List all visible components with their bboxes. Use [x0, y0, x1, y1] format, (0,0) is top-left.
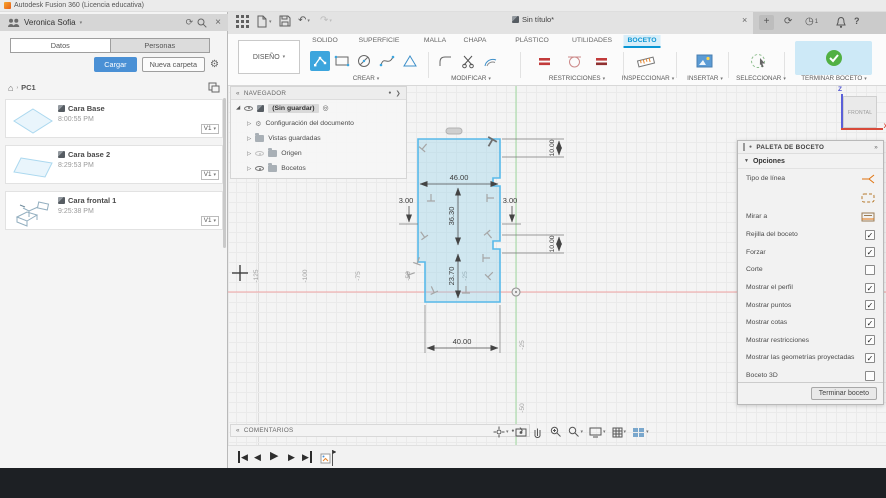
row-label: Mostrar cotas: [746, 319, 787, 326]
expand-icon[interactable]: »: [874, 144, 878, 151]
group-label: MODIFICAR: [451, 75, 486, 82]
palette-row-show-constraints[interactable]: Mostrar restricciones ✓: [738, 332, 883, 350]
version-label: V1: [204, 217, 212, 225]
dim-height-bottom[interactable]: 23.70: [447, 267, 456, 286]
window-title: Autodesk Fusion 360 (Licencia educativa): [14, 2, 144, 9]
palette-row-show-profile[interactable]: Mostrar el perfil ✓: [738, 279, 883, 297]
chevron-down-icon: ▾: [488, 76, 491, 82]
group-label: RESTRICCIONES: [549, 75, 601, 82]
ribbon: SOLIDO SUPERFICIE MALLA CHAPA PLÁSTICO U…: [228, 34, 886, 86]
dim-right-top[interactable]: 10.00: [549, 139, 556, 156]
line-type-icon[interactable]: [861, 174, 875, 184]
viewports-tool[interactable]: ▾: [632, 427, 649, 438]
document-cube-icon: [58, 197, 65, 204]
qat-right-cluster: + ⟳ ◷1 ?: [753, 12, 886, 34]
document-title: Sin título*: [522, 15, 554, 24]
row-label: Corte: [746, 266, 763, 273]
dim-width-bottom[interactable]: 40.00: [453, 337, 472, 346]
file-time: 9:25:38 PM: [58, 208, 94, 215]
help-icon[interactable]: ?: [854, 16, 860, 26]
row-label: Forzar: [746, 249, 766, 256]
timeline-play-button[interactable]: ▶: [270, 450, 278, 462]
file-menu[interactable]: ▾: [257, 15, 272, 28]
x-tick: -75: [355, 271, 362, 281]
chevron-down-icon: ▾: [720, 76, 723, 82]
model-canvas[interactable]: -125 -100 -75 -50 -25 -25 -50 46.00 36.3…: [228, 86, 886, 445]
row-label: Mirar a: [746, 213, 767, 220]
tab-solido[interactable]: SOLIDO: [308, 35, 342, 46]
group-modificar[interactable]: MODIFICAR▾: [451, 75, 491, 82]
pan-tool[interactable]: [533, 426, 544, 438]
palette-row-look-at[interactable]: Mirar a: [738, 207, 883, 226]
fusion-window: Autodesk Fusion 360 (Licencia educativa)…: [0, 0, 886, 498]
group-crear[interactable]: CREAR▾: [353, 75, 380, 82]
dim-tab-left[interactable]: 3.00: [399, 196, 414, 205]
notification-count: 1: [815, 19, 818, 25]
display-settings-tool[interactable]: ▾: [589, 427, 606, 438]
palette-row-slice[interactable]: Corte: [738, 261, 883, 279]
scrollbar[interactable]: [223, 98, 226, 248]
chevron-down-icon: ▾: [603, 429, 606, 435]
refresh-icon[interactable]: ⟳: [186, 17, 194, 28]
checkbox[interactable]: ✓: [865, 318, 875, 328]
windows-taskbar: 17°CNublado W F ∧ ⟳ ESPLAA 21:4114/08/20…: [0, 468, 886, 498]
rectangle-tool[interactable]: [332, 51, 352, 71]
redo-icon: ↷: [320, 15, 328, 26]
finish-sketch-button[interactable]: Terminar boceto: [811, 387, 877, 400]
view-toolbar: ▾ ▾ ▾ ▾ ▾: [493, 426, 649, 438]
workspace-selector[interactable]: DISEÑO ▾: [238, 40, 300, 74]
tab-superficie[interactable]: SUPERFICIE: [355, 35, 404, 46]
tree-open-icon[interactable]: ◢: [236, 105, 240, 111]
chevron-down-icon[interactable]: ▾: [80, 20, 83, 26]
people-icon: [7, 18, 20, 27]
activate-target-icon[interactable]: ◎: [323, 104, 329, 112]
insert-image-tool[interactable]: [694, 51, 714, 71]
upload-button[interactable]: Cargar: [94, 57, 136, 72]
row-label: Mostrar el perfil: [746, 284, 793, 291]
chevron-down-icon: ▾: [213, 217, 216, 225]
y-tick: -50: [519, 403, 526, 413]
folder-icon: [255, 135, 264, 142]
search-icon[interactable]: [197, 18, 207, 28]
clock-glyph: ◷: [805, 16, 814, 27]
file-thumbnail: [10, 105, 56, 135]
row-label: Boceto 3D: [746, 372, 778, 379]
chevron-down-icon: ▾: [603, 76, 606, 82]
folder-icon: [268, 165, 277, 172]
navigator-item-sketches[interactable]: ▷ Bocetos: [231, 161, 406, 176]
visibility-eye-icon[interactable]: [255, 151, 264, 156]
chevron-down-icon: ▾: [864, 76, 867, 82]
orbit-tool[interactable]: ▾: [493, 426, 509, 438]
file-name: Cara Base: [68, 104, 105, 113]
checkbox[interactable]: [865, 265, 875, 275]
version-label: V1: [204, 171, 212, 179]
trim-scissors-tool[interactable]: [458, 51, 478, 71]
tab-utilidades[interactable]: UTILIDADES: [568, 35, 616, 46]
checkbox[interactable]: ✓: [865, 353, 875, 363]
timeline-sketch-marker[interactable]: [320, 449, 336, 467]
save-icon[interactable]: [279, 15, 291, 27]
navigator-item-doc-settings[interactable]: ▷ ⚙ Configuración del documento: [231, 116, 406, 131]
collapse-icon[interactable]: «: [236, 427, 240, 434]
folder-icon: [268, 150, 277, 157]
version-label: V1: [204, 125, 212, 133]
y-tick: -25: [519, 340, 526, 350]
measure-tool[interactable]: [636, 51, 656, 71]
breadcrumb-sep-icon: ›: [16, 85, 18, 91]
dim-right-mid[interactable]: 10.00: [549, 235, 556, 252]
sketch-palette: ● PALETA DE BOCETO » ▼ Opciones Tipo de …: [737, 140, 884, 405]
finish-sketch-ribbon-button[interactable]: [795, 41, 872, 75]
timeline-skip-end-button[interactable]: ▶: [302, 451, 312, 463]
file-card-cara-base[interactable]: Cara Base 8:00:55 PM V1▾: [5, 99, 223, 138]
workspace-label: DISEÑO: [253, 54, 280, 61]
polygon-tool[interactable]: [400, 51, 420, 71]
dim-tab-right[interactable]: 3.00: [503, 196, 518, 205]
timeline-bar: ◀ ◀ ▶ ▶ ▶: [228, 445, 886, 468]
chevron-down-icon: ▾: [581, 429, 584, 435]
tab-malla[interactable]: MALLA: [420, 35, 450, 46]
item-label: Origen: [281, 150, 301, 157]
group-label: INSPECCIONAR: [622, 75, 670, 82]
checkbox[interactable]: [865, 371, 875, 381]
dim-height-mid[interactable]: 36.30: [447, 207, 456, 226]
palette-row-show-points[interactable]: Mostrar puntos ✓: [738, 296, 883, 314]
bell-icon[interactable]: [835, 16, 847, 29]
drag-handle[interactable]: [743, 143, 745, 151]
file-thumbnail: [10, 195, 56, 228]
row-label: Rejilla del boceto: [746, 231, 798, 238]
group-label: TERMINAR BOCETO: [801, 75, 862, 82]
timeline-step-back-button[interactable]: ◀: [254, 451, 261, 463]
row-label: Tipo de línea: [746, 175, 785, 182]
new-document-plus-icon[interactable]: +: [759, 15, 774, 30]
fusion-app-icon: [4, 2, 11, 9]
item-label: Configuración del documento: [266, 120, 354, 127]
group-label: INSERTAR: [687, 75, 718, 82]
circle-tool[interactable]: [354, 51, 374, 71]
collection-icon[interactable]: [208, 82, 220, 93]
group-seleccionar[interactable]: SELECCIONAR▾: [736, 75, 786, 82]
chevron-down-icon: ▾: [672, 76, 675, 82]
z-axis-label: Z: [838, 86, 842, 93]
panel-settings-gear-icon[interactable]: ⚙: [210, 59, 219, 70]
job-status-icon[interactable]: ⟳: [784, 16, 792, 27]
group-insertar[interactable]: INSERTAR▾: [687, 75, 723, 82]
chevron-down-icon: ▾: [213, 125, 216, 133]
row-label: Mostrar puntos: [746, 302, 791, 309]
checkbox[interactable]: ✓: [865, 247, 875, 257]
file-card-cara-base-2[interactable]: Cara base 2 8:29:53 PM V1▾: [5, 145, 223, 184]
breadcrumb: ⌂ › PC1: [8, 82, 220, 93]
grid-settings-tool[interactable]: ▾: [612, 427, 627, 438]
gear-icon: ⚙: [255, 120, 261, 128]
chevron-down-icon: ▾: [269, 19, 272, 25]
palette-row-line-type[interactable]: Tipo de línea: [738, 169, 883, 188]
row-label: Mostrar restricciones: [746, 337, 809, 344]
fillet-tool[interactable]: [435, 51, 455, 71]
timeline-step-forward-button[interactable]: ▶: [288, 451, 295, 463]
version-dropdown[interactable]: V1▾: [201, 124, 219, 134]
chevron-down-icon: ▾: [213, 171, 216, 179]
data-panel-header: Veronica Sofia ▾ ⟳ ×: [0, 14, 228, 31]
dot-icon: ●: [749, 144, 752, 150]
row-label: Mostrar las geometrías proyectadas: [746, 354, 854, 361]
redo-button[interactable]: ↷▾: [320, 15, 332, 26]
checkbox[interactable]: ✓: [865, 335, 875, 345]
navigator-title: NAVEGADOR: [244, 90, 385, 97]
item-label: Bocetos: [281, 165, 306, 172]
navigator-item-origin[interactable]: ▷ Origen: [231, 146, 406, 161]
spline-tool[interactable]: [377, 51, 397, 71]
tab-plastico[interactable]: PLÁSTICO: [511, 35, 553, 46]
navigator-panel: « NAVEGADOR ● ❯ ◢ (Sin guardar) ◎ ▷ ⚙ Co…: [230, 86, 407, 179]
offset-tool[interactable]: [480, 51, 500, 71]
item-label: Vistas guardadas: [268, 135, 320, 142]
document-name: (Sin guardar): [268, 104, 318, 113]
undo-icon: ↶: [298, 15, 306, 26]
comments-title: COMENTARIOS: [244, 427, 508, 434]
crosshair-cursor: [232, 265, 248, 281]
collapsed-dim-pill[interactable]: [446, 128, 462, 134]
parallel-constraint-tool[interactable]: [591, 51, 611, 71]
palette-title: PALETA DE BOCETO: [756, 144, 870, 151]
tab-datos[interactable]: Datos: [11, 39, 110, 52]
origin-point[interactable]: [512, 288, 520, 296]
file-time: 8:00:55 PM: [58, 116, 94, 123]
document-cube-icon: [257, 105, 264, 112]
equal-constraint-tool[interactable]: [534, 51, 554, 71]
x-tick: -100: [302, 269, 309, 282]
recent-clock-icon[interactable]: ◷1: [805, 16, 818, 27]
navigator-root-row[interactable]: ◢ (Sin guardar) ◎: [231, 100, 406, 116]
undo-button[interactable]: ↶▾: [298, 15, 310, 26]
select-tool[interactable]: [749, 51, 769, 71]
group-restricciones[interactable]: RESTRICCIONES▾: [549, 75, 605, 82]
line-tool[interactable]: [310, 51, 330, 71]
document-cube-icon: [512, 16, 519, 23]
viewcube[interactable]: Z X FRONTAL: [831, 90, 885, 140]
version-dropdown[interactable]: V1▾: [201, 216, 219, 226]
zoom-tool[interactable]: [550, 426, 562, 438]
checkbox[interactable]: ✓: [865, 230, 875, 240]
chevron-right-icon[interactable]: ❯: [396, 90, 401, 97]
chevron-down-icon: ▾: [506, 429, 509, 435]
user-menu[interactable]: Veronica Sofia: [24, 18, 76, 27]
x-tick: -125: [253, 269, 260, 282]
palette-row-construction[interactable]: [738, 188, 883, 207]
tangent-constraint-tool[interactable]: [564, 51, 584, 71]
palette-row-show-projected[interactable]: Mostrar las geometrías proyectadas ✓: [738, 349, 883, 367]
window-titlebar: Autodesk Fusion 360 (Licencia educativa): [0, 0, 886, 12]
chevron-down-icon: ▾: [283, 54, 286, 60]
document-tab[interactable]: Sin título*: [512, 15, 554, 24]
group-label: CREAR: [353, 75, 375, 82]
document-cube-icon: [58, 151, 65, 158]
collapse-icon[interactable]: «: [236, 90, 240, 97]
group-label: SELECCIONAR: [736, 75, 781, 82]
chevron-down-icon: ▾: [646, 429, 649, 435]
file-thumbnail: [10, 151, 56, 181]
new-folder-button[interactable]: Nueva carpeta: [142, 57, 205, 72]
main-area: ▾ ↶▾ ↷▾ Sin título* × + ⟳ ◷1 ? SOLIDO SU…: [228, 12, 886, 468]
home-icon[interactable]: ⌂: [8, 83, 13, 93]
data-panel: Veronica Sofia ▾ ⟳ × Datos Personas Carg…: [0, 12, 228, 468]
tree-closed-icon[interactable]: ▷: [247, 136, 251, 142]
navigator-item-named-views[interactable]: ▷ Vistas guardadas: [231, 131, 406, 146]
tab-chapa[interactable]: CHAPA: [460, 35, 491, 46]
dot-icon: ●: [388, 90, 391, 96]
dim-width-top[interactable]: 46.00: [450, 173, 469, 182]
data-panel-tabs: Datos Personas: [10, 38, 210, 53]
group-terminar-boceto[interactable]: TERMINAR BOCETO▾: [801, 75, 867, 82]
chevron-down-icon: ▾: [783, 76, 786, 82]
visibility-eye-icon[interactable]: [255, 166, 264, 171]
tree-closed-icon[interactable]: ▷: [247, 166, 251, 172]
palette-row-show-dimensions[interactable]: Mostrar cotas ✓: [738, 314, 883, 332]
options-section-label: Opciones: [753, 158, 785, 165]
checkbox[interactable]: ✓: [865, 300, 875, 310]
checkbox[interactable]: ✓: [865, 283, 875, 293]
close-tab-icon[interactable]: ×: [742, 15, 747, 25]
construction-line-icon[interactable]: [861, 193, 875, 203]
look-at-icon[interactable]: [861, 211, 875, 222]
close-panel-icon[interactable]: ×: [215, 17, 221, 28]
palette-row-snap[interactable]: Forzar ✓: [738, 244, 883, 262]
chevron-down-icon: ▾: [377, 76, 380, 82]
file-name: Cara frontal 1: [68, 196, 116, 205]
breadcrumb-project[interactable]: PC1: [21, 83, 36, 92]
viewcube-front-face[interactable]: FRONTAL: [843, 96, 877, 128]
green-check-icon: [825, 49, 843, 67]
zoom-window-tool[interactable]: ▾: [568, 426, 584, 438]
comments-bar[interactable]: « COMENTARIOS ● ❯: [230, 424, 530, 437]
chevron-down-icon: ▾: [624, 429, 627, 435]
palette-row-sketch-grid[interactable]: Rejilla del boceto ✓: [738, 226, 883, 244]
group-inspeccionar[interactable]: INSPECCIONAR▾: [622, 75, 674, 82]
quick-access-toolbar: ▾ ↶▾ ↷▾ Sin título* × + ⟳ ◷1 ?: [228, 12, 886, 34]
tree-closed-icon[interactable]: ▷: [247, 121, 251, 127]
tab-personas[interactable]: Personas: [110, 39, 210, 52]
section-arrow-icon[interactable]: ▼: [744, 158, 749, 164]
tree-closed-icon[interactable]: ▷: [247, 151, 251, 157]
timeline-skip-start-button[interactable]: ◀: [238, 451, 248, 463]
version-dropdown[interactable]: V1▾: [201, 170, 219, 180]
chevron-down-icon: ▾: [307, 18, 310, 24]
file-card-cara-frontal-1[interactable]: Cara frontal 1 9:25:38 PM V1▾: [5, 191, 223, 230]
look-at-tool[interactable]: [515, 427, 527, 438]
app-grid-icon[interactable]: [236, 15, 249, 28]
tab-boceto[interactable]: BOCETO: [624, 35, 661, 48]
visibility-eye-icon[interactable]: [244, 106, 253, 111]
file-time: 8:29:53 PM: [58, 162, 94, 169]
file-name: Cara base 2: [68, 150, 110, 159]
document-cube-icon: [58, 105, 65, 112]
chevron-down-icon: ▾: [329, 18, 332, 24]
